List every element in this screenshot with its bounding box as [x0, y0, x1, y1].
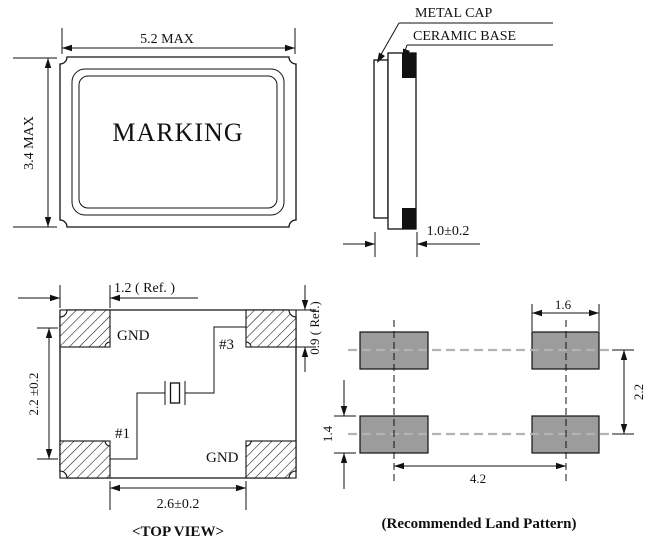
pad-gnd-top-left — [60, 310, 110, 347]
dim-label-pad-width: 1.2 ( Ref. ) — [114, 281, 175, 296]
land-pattern-caption: (Recommended Land Pattern) — [382, 516, 577, 532]
dim-label-width: 5.2 MAX — [140, 32, 194, 47]
ceramic-base-shape — [388, 53, 416, 229]
callout-ceramic-base: CERAMIC BASE — [403, 29, 553, 59]
dimension-vertical-pitch-2-2: 2.2 ±0.2 — [26, 328, 58, 459]
metal-cap-label: METAL CAP — [415, 6, 493, 21]
dim-label-column-pitch: 4.2 — [470, 471, 486, 486]
land-pattern: 1.6 2.2 1.4 4.2 (Recommend — [320, 297, 646, 532]
pad-gnd-bottom-right — [246, 441, 296, 478]
dim-label-thickness: 1.0±0.2 — [427, 224, 470, 239]
dim-label-land-height: 1.4 — [320, 425, 335, 442]
dimension-row-pitch-2-2: 2.2 — [612, 350, 646, 434]
dimension-height-3-4: 3.4 MAX — [13, 58, 57, 227]
dim-label-vertical-pitch: 2.2 ±0.2 — [26, 373, 41, 416]
dim-label-height: 3.4 MAX — [22, 116, 37, 170]
technical-drawing: MARKING 5.2 MAX 3.4 MAX METAL CAP — [0, 0, 658, 554]
drawing-page: MARKING 5.2 MAX 3.4 MAX METAL CAP — [0, 0, 658, 554]
ceramic-base-label: CERAMIC BASE — [413, 29, 516, 44]
dim-label-row-pitch: 2.2 — [631, 384, 646, 400]
package-top-view: MARKING 5.2 MAX 3.4 MAX — [13, 28, 296, 227]
package-side-view: METAL CAP CERAMIC BASE 1.0±0.2 — [343, 6, 553, 257]
pad-label-gnd-top: GND — [117, 328, 150, 344]
pad-3-top-right — [246, 310, 296, 347]
metal-cap-shape — [374, 60, 388, 218]
top-view-caption: <TOP VIEW> — [132, 524, 224, 540]
dimension-pad-width-1-2: 1.2 ( Ref. ) — [18, 281, 198, 308]
dim-label-pad-height: 0.9 ( Ref.) — [307, 301, 322, 354]
terminal-pad-bottom — [402, 208, 416, 229]
pad-1-bottom-left — [60, 441, 110, 478]
dimension-horizontal-span-2-6: 2.6±0.2 — [110, 481, 246, 512]
marking-text: MARKING — [112, 118, 243, 147]
dim-label-horizontal-span: 2.6±0.2 — [157, 497, 200, 512]
pad-label-gnd-bottom: GND — [206, 450, 239, 466]
dimension-width-5-2: 5.2 MAX — [62, 28, 295, 54]
pad-label-1: #1 — [115, 426, 130, 442]
dimension-column-pitch-4-2: 4.2 — [394, 463, 566, 486]
dimension-pad-height-0-9: 0.9 ( Ref.) — [296, 285, 322, 372]
pad-label-3: #3 — [219, 337, 234, 353]
pad-layout-top-view: GND #3 #1 GND 1.2 ( Ref. ) 0.9 ( Ref.) — [18, 281, 322, 540]
dim-label-land-width: 1.6 — [555, 297, 572, 312]
